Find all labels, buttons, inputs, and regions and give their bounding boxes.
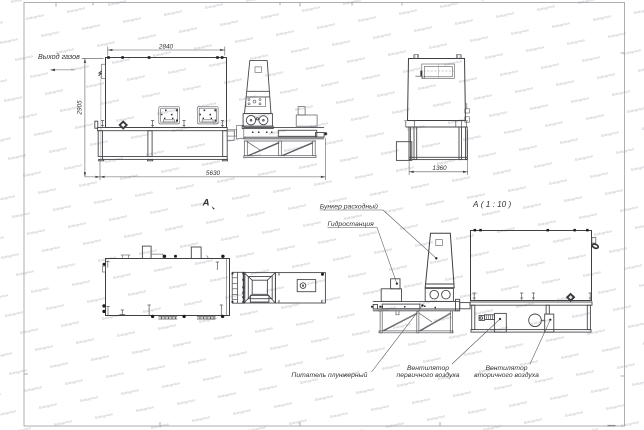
svg-text:Sodrug-Nv.k: Sodrug-Nv.k: [626, 106, 644, 114]
svg-text:Sodrug-Nv.k: Sodrug-Nv.k: [615, 147, 634, 155]
svg-text:Sodrug-Nv.k: Sodrug-Nv.k: [235, 251, 254, 259]
svg-text:Sodrug-Nv.k: Sodrug-Nv.k: [134, 190, 153, 198]
svg-text:Sodrug-Nv.k: Sodrug-Nv.k: [231, 193, 250, 201]
svg-text:Sodrug-Nv.k: Sodrug-Nv.k: [191, 415, 210, 423]
svg-text:Sodrug-Nv.k: Sodrug-Nv.k: [432, 100, 451, 108]
svg-text:Sodrug-Nv.k: Sodrug-Nv.k: [89, 139, 108, 147]
svg-text:Sodrug-Nv.k: Sodrug-Nv.k: [0, 351, 13, 359]
svg-text:Sodrug-Nv.k: Sodrug-Nv.k: [354, 172, 373, 180]
svg-text:Sodrug-Nv.k: Sodrug-Nv.k: [407, 339, 426, 347]
svg-text:Sodrug-Nv.k: Sodrug-Nv.k: [276, 244, 295, 252]
svg-text:Sodrug-Nv.k: Sodrug-Nv.k: [217, 391, 236, 399]
svg-text:Sodrug-Nv.k: Sodrug-Nv.k: [396, 380, 415, 388]
svg-text:Sodrug-Nv.k: Sodrug-Nv.k: [529, 103, 548, 111]
svg-text:Sodrug-Nv.k: Sodrug-Nv.k: [60, 320, 79, 328]
svg-text:Sodrug-Nv.k: Sodrug-Nv.k: [138, 248, 157, 256]
svg-text:Sodrug-Nv.k: Sodrug-Nv.k: [156, 108, 175, 116]
svg-text:Sodrug-Nv.k: Sodrug-Nv.k: [232, 408, 251, 416]
svg-text:Sodrug-Nv.k: Sodrug-Nv.k: [548, 178, 567, 186]
svg-text:Sodrug-Nv.k: Sodrug-Nv.k: [149, 207, 168, 215]
svg-text:Sodrug-Nv.k: Sodrug-Nv.k: [366, 346, 385, 354]
svg-text:Sodrug-Nv.k: Sodrug-Nv.k: [301, 5, 320, 13]
svg-text:Sodrug-Nv.k: Sodrug-Nv.k: [590, 386, 609, 394]
svg-text:первичного воздуха: первичного воздуха: [397, 371, 460, 379]
svg-text:Sodrug-Nv.k: Sodrug-Nv.k: [66, 6, 85, 14]
svg-text:Sodrug-Nv.k: Sodrug-Nv.k: [454, 18, 473, 26]
svg-text:Sodrug-Nv.k: Sodrug-Nv.k: [492, 168, 511, 176]
svg-text:А ( 1 : 10 ): А ( 1 : 10 ): [472, 200, 511, 209]
svg-text:Sodrug-Nv.k: Sodrug-Nv.k: [216, 176, 235, 184]
svg-text:Sodrug-Nv.k: Sodrug-Nv.k: [488, 110, 507, 118]
svg-text:Sodrug-Nv.k: Sodrug-Nv.k: [81, 23, 100, 31]
svg-text:Sodrug-Nv.k: Sodrug-Nv.k: [86, 296, 105, 304]
svg-text:Sodrug-Nv.k: Sodrug-Nv.k: [202, 374, 221, 382]
svg-text:Sodrug-Nv.k: Sodrug-Nv.k: [634, 222, 644, 230]
svg-text:Sodrug-Nv.k: Sodrug-Nv.k: [343, 213, 362, 221]
svg-text:Sodrug-Nv.k: Sodrug-Nv.k: [82, 238, 101, 246]
svg-text:Sodrug-Nv.k: Sodrug-Nv.k: [122, 16, 141, 24]
svg-text:Sodrug-Nv.k: Sodrug-Nv.k: [533, 161, 552, 169]
svg-text:Sodrug-Nv.k: Sodrug-Nv.k: [552, 236, 571, 244]
svg-text:Sodrug-Nv.k: Sodrug-Nv.k: [567, 253, 586, 261]
svg-text:Sodrug-Nv.k: Sodrug-Nv.k: [168, 282, 187, 290]
svg-text:Sodrug-Nv.k: Sodrug-Nv.k: [574, 154, 593, 162]
svg-text:Sodrug-Nv.k: Sodrug-Nv.k: [428, 42, 447, 50]
svg-text:Sodrug-Nv.k: Sodrug-Nv.k: [64, 378, 83, 386]
svg-text:Sodrug-Nv.k: Sodrug-Nv.k: [238, 94, 257, 102]
svg-text:Sodrug-Nv.k: Sodrug-Nv.k: [287, 203, 306, 211]
svg-text:Sodrug-Nv.k: Sodrug-Nv.k: [112, 272, 131, 280]
svg-text:Sodrug-Nv.k: Sodrug-Nv.k: [23, 385, 42, 393]
svg-text:Sodrug-Nv.k: Sodrug-Nv.k: [261, 227, 280, 235]
svg-text:Вентилятор: Вентилятор: [407, 365, 449, 372]
svg-text:Sodrug-Nv.k: Sodrug-Nv.k: [37, 187, 56, 195]
svg-text:Sodrug-Nv.k: Sodrug-Nv.k: [589, 171, 608, 179]
svg-text:Sodrug-Nv.k: Sodrug-Nv.k: [612, 304, 631, 312]
svg-text:Sodrug-Nv.k: Sodrug-Nv.k: [536, 4, 555, 12]
svg-text:Sodrug-Nv.k: Sodrug-Nv.k: [585, 113, 604, 121]
svg-text:Sodrug-Nv.k: Sodrug-Nv.k: [384, 206, 403, 214]
svg-text:Sodrug-Nv.k: Sodrug-Nv.k: [313, 179, 332, 187]
svg-text:Sodrug-Nv.k: Sodrug-Nv.k: [537, 219, 556, 227]
svg-text:Sodrug-Nv.k: Sodrug-Nv.k: [25, 13, 44, 21]
svg-text:Sodrug-Nv.k: Sodrug-Nv.k: [399, 223, 418, 231]
svg-text:Sodrug-Nv.k: Sodrug-Nv.k: [269, 343, 288, 351]
svg-text:Sodrug-Nv.k: Sodrug-Nv.k: [78, 180, 97, 188]
svg-text:Sodrug-Nv.k: Sodrug-Nv.k: [581, 55, 600, 63]
svg-text:Sodrug-Nv.k: Sodrug-Nv.k: [153, 265, 172, 273]
svg-text:Sodrug-Nv.k: Sodrug-Nv.k: [131, 347, 150, 355]
svg-text:Sodrug-Nv.k: Sodrug-Nv.k: [351, 329, 370, 337]
svg-text:Sodrug-Nv.k: Sodrug-Nv.k: [597, 287, 616, 295]
svg-text:Sodrug-Nv.k: Sodrug-Nv.k: [279, 87, 298, 95]
svg-text:Sodrug-Nv.k: Sodrug-Nv.k: [443, 59, 462, 67]
svg-text:Sodrug-Nv.k: Sodrug-Nv.k: [96, 40, 115, 48]
svg-text:Sodrug-Nv.k: Sodrug-Nv.k: [596, 72, 615, 80]
svg-text:Sodrug-Nv.k: Sodrug-Nv.k: [101, 313, 120, 321]
svg-text:Sodrug-Nv.k: Sodrug-Nv.k: [451, 175, 470, 183]
svg-text:Sodrug-Nv.k: Sodrug-Nv.k: [90, 354, 109, 362]
svg-text:Sodrug-Nv.k: Sodrug-Nv.k: [578, 212, 597, 220]
svg-text:Sodrug-Nv.k: Sodrug-Nv.k: [627, 321, 644, 329]
svg-text:Sodrug-Nv.k: Sodrug-Nv.k: [0, 392, 2, 400]
svg-text:Sodrug-Nv.k: Sodrug-Nv.k: [429, 257, 448, 265]
svg-text:Sodrug-Nv.k: Sodrug-Nv.k: [316, 22, 335, 30]
svg-text:Sodrug-Nv.k: Sodrug-Nv.k: [288, 418, 307, 426]
svg-text:Sodrug-Nv.k: Sodrug-Nv.k: [549, 393, 568, 401]
svg-text:Sodrug-Nv.k: Sodrug-Nv.k: [70, 64, 89, 72]
svg-text:Sodrug-Nv.k: Sodrug-Nv.k: [291, 261, 310, 269]
svg-text:Sodrug-Nv.k: Sodrug-Nv.k: [540, 62, 559, 70]
svg-text:Sodrug-Nv.k: Sodrug-Nv.k: [619, 205, 638, 213]
svg-text:Sodrug-Nv.k: Sodrug-Nv.k: [638, 280, 644, 288]
svg-text:А: А: [202, 198, 210, 209]
svg-text:Sodrug-Nv.k: Sodrug-Nv.k: [11, 211, 30, 219]
svg-text:Sodrug-Nv.k: Sodrug-Nv.k: [467, 407, 486, 415]
svg-text:Sodrug-Nv.k: Sodrug-Nv.k: [0, 177, 1, 185]
svg-text:Sodrug-Nv.k: Sodrug-Nv.k: [85, 81, 104, 89]
svg-text:Sodrug-Nv.k: Sodrug-Nv.k: [52, 204, 71, 212]
svg-text:Sodrug-Nv.k: Sodrug-Nv.k: [320, 80, 339, 88]
svg-text:Sodrug-Nv.k: Sodrug-Nv.k: [242, 152, 261, 160]
svg-text:Sodrug-Nv.k: Sodrug-Nv.k: [294, 104, 313, 112]
svg-text:Sodrug-Nv.k: Sodrug-Nv.k: [18, 112, 37, 120]
svg-text:Sodrug-Nv.k: Sodrug-Nv.k: [75, 337, 94, 345]
svg-text:Sodrug-Nv.k: Sodrug-Nv.k: [495, 11, 514, 19]
svg-text:Sodrug-Nv.k: Sodrug-Nv.k: [440, 216, 459, 224]
svg-text:Sodrug-Nv.k: Sodrug-Nv.k: [298, 162, 317, 170]
svg-text:Sodrug-Nv.k: Sodrug-Nv.k: [74, 122, 93, 130]
svg-text:Sodrug-Nv.k: Sodrug-Nv.k: [94, 412, 113, 420]
svg-text:Sodrug-Nv.k: Sodrug-Nv.k: [370, 404, 389, 412]
svg-text:Sodrug-Nv.k: Sodrug-Nv.k: [290, 46, 309, 54]
svg-text:Sodrug-Nv.k: Sodrug-Nv.k: [620, 420, 639, 428]
svg-text:Sodrug-Nv.k: Sodrug-Nv.k: [355, 387, 374, 395]
svg-text:Sodrug-Nv.k: Sodrug-Nv.k: [525, 45, 544, 53]
svg-text:Выход газов: Выход газов: [38, 52, 80, 61]
svg-text:Sodrug-Nv.k: Sodrug-Nv.k: [0, 293, 9, 301]
svg-text:Sodrug-Nv.k: Sodrug-Nv.k: [135, 405, 154, 413]
svg-text:Sodrug-Nv.k: Sodrug-Nv.k: [381, 363, 400, 371]
svg-text:Sodrug-Nv.k: Sodrug-Nv.k: [104, 156, 123, 164]
svg-text:Sodrug-Nv.k: Sodrug-Nv.k: [176, 398, 195, 406]
svg-text:Sodrug-Nv.k: Sodrug-Nv.k: [163, 9, 182, 17]
svg-text:Sodrug-Nv.k: Sodrug-Nv.k: [365, 131, 384, 139]
svg-text:Вентилятор: Вентилятор: [485, 365, 527, 372]
svg-text:Sodrug-Nv.k: Sodrug-Nv.k: [331, 39, 350, 47]
svg-text:Sodrug-Nv.k: Sodrug-Nv.k: [243, 367, 262, 375]
svg-text:Sodrug-Nv.k: Sodrug-Nv.k: [116, 330, 135, 338]
svg-text:Sodrug-Nv.k: Sodrug-Nv.k: [592, 14, 611, 22]
svg-text:Sodrug-Nv.k: Sodrug-Nv.k: [26, 228, 45, 236]
svg-text:Sodrug-Nv.k: Sodrug-Nv.k: [152, 50, 171, 58]
svg-text:Sodrug-Nv.k: Sodrug-Nv.k: [398, 8, 417, 16]
svg-text:Sodrug-Nv.k: Sodrug-Nv.k: [526, 260, 545, 268]
svg-text:Sodrug-Nv.k: Sodrug-Nv.k: [523, 417, 542, 425]
svg-text:Sodrug-Nv.k: Sodrug-Nv.k: [413, 25, 432, 33]
svg-text:Sodrug-Nv.k: Sodrug-Nv.k: [126, 74, 145, 82]
svg-text:Sodrug-Nv.k: Sodrug-Nv.k: [198, 316, 217, 324]
svg-text:Sodrug-Nv.k: Sodrug-Nv.k: [346, 56, 365, 64]
svg-text:Sodrug-Nv.k: Sodrug-Nv.k: [564, 410, 583, 418]
svg-text:Sodrug-Nv.k: Sodrug-Nv.k: [175, 183, 194, 191]
svg-text:2905: 2905: [77, 100, 84, 116]
svg-text:Sodrug-Nv.k: Sodrug-Nv.k: [115, 115, 134, 123]
svg-text:Sodrug-Nv.k: Sodrug-Nv.k: [376, 90, 395, 98]
svg-text:Sodrug-Nv.k: Sodrug-Nv.k: [250, 268, 269, 276]
svg-text:вторичного воздуха: вторичного воздуха: [474, 371, 539, 379]
svg-text:Sodrug-Nv.k: Sodrug-Nv.k: [314, 394, 333, 402]
svg-text:Sodrug-Nv.k: Sodrug-Nv.k: [295, 319, 314, 327]
svg-text:Sodrug-Nv.k: Sodrug-Nv.k: [249, 53, 268, 61]
svg-text:Sodrug-Nv.k: Sodrug-Nv.k: [310, 336, 329, 344]
svg-text:Sodrug-Nv.k: Sodrug-Nv.k: [373, 247, 392, 255]
svg-text:Sodrug-Nv.k: Sodrug-Nv.k: [157, 323, 176, 331]
svg-text:Sodrug-Nv.k: Sodrug-Nv.k: [604, 188, 623, 196]
svg-text:Sodrug-Nv.k: Sodrug-Nv.k: [254, 326, 273, 334]
svg-text:Sodrug-Nv.k: Sodrug-Nv.k: [178, 26, 197, 34]
svg-text:Sodrug-Nv.k: Sodrug-Nv.k: [508, 400, 527, 408]
svg-text:Sodrug-Nv.k: Sodrug-Nv.k: [71, 279, 90, 287]
svg-text:Sodrug-Nv.k: Sodrug-Nv.k: [34, 344, 53, 352]
svg-text:Sodrug-Nv.k: Sodrug-Nv.k: [204, 2, 223, 10]
svg-text:Sodrug-Nv.k: Sodrug-Nv.k: [3, 95, 22, 103]
svg-text:Sodrug-Nv.k: Sodrug-Nv.k: [362, 288, 381, 296]
svg-text:Sodrug-Nv.k: Sodrug-Nv.k: [228, 350, 247, 358]
svg-text:Sodrug-Nv.k: Sodrug-Nv.k: [30, 286, 49, 294]
svg-text:Sodrug-Nv.k: Sodrug-Nv.k: [623, 263, 642, 271]
svg-text:Sodrug-Nv.k: Sodrug-Nv.k: [172, 340, 191, 348]
svg-text:Sodrug-Nv.k: Sodrug-Nv.k: [630, 164, 644, 172]
svg-text:Sodrug-Nv.k: Sodrug-Nv.k: [485, 267, 504, 275]
svg-text:Sodrug-Nv.k: Sodrug-Nv.k: [480, 0, 499, 2]
svg-text:Sodrug-Nv.k: Sodrug-Nv.k: [503, 127, 522, 135]
svg-text:Sodrug-Nv.k: Sodrug-Nv.k: [510, 28, 529, 36]
svg-text:Sodrug-Nv.k: Sodrug-Nv.k: [179, 241, 198, 249]
svg-text:Sodrug-Nv.k: Sodrug-Nv.k: [518, 144, 537, 152]
svg-text:Sodrug-Nv.k: Sodrug-Nv.k: [637, 65, 644, 73]
svg-text:Sodrug-Nv.k: Sodrug-Nv.k: [563, 195, 582, 203]
svg-text:Sodrug-Nv.k: Sodrug-Nv.k: [4, 310, 23, 318]
svg-text:Sodrug-Nv.k: Sodrug-Nv.k: [107, 0, 126, 7]
svg-text:Sodrug-Nv.k: Sodrug-Nv.k: [0, 78, 8, 86]
svg-text:Sodrug-Nv.k: Sodrug-Nv.k: [452, 390, 471, 398]
svg-text:Sodrug-Nv.k: Sodrug-Nv.k: [0, 20, 4, 28]
svg-text:Sodrug-Nv.k: Sodrug-Nv.k: [0, 136, 12, 144]
svg-text:Sodrug-Nv.k: Sodrug-Nv.k: [593, 229, 612, 237]
svg-text:Sodrug-Nv.k: Sodrug-Nv.k: [616, 362, 635, 370]
svg-text:Sodrug-Nv.k: Sodrug-Nv.k: [411, 397, 430, 405]
svg-text:Sodrug-Nv.k: Sodrug-Nv.k: [458, 76, 477, 84]
svg-text:Sodrug-Nv.k: Sodrug-Nv.k: [142, 306, 161, 314]
svg-text:Sodrug-Nv.k: Sodrug-Nv.k: [470, 250, 489, 258]
svg-text:Sodrug-Nv.k: Sodrug-Nv.k: [209, 275, 228, 283]
svg-text:Sodrug-Nv.k: Sodrug-Nv.k: [49, 361, 68, 369]
svg-text:Sodrug-Nv.k: Sodrug-Nv.k: [425, 199, 444, 207]
svg-text:Sodrug-Nv.k: Sodrug-Nv.k: [570, 96, 589, 104]
svg-text:Sodrug-Nv.k: Sodrug-Nv.k: [358, 230, 377, 238]
svg-text:Sodrug-Nv.k: Sodrug-Nv.k: [545, 335, 564, 343]
svg-text:Sodrug-Nv.k: Sodrug-Nv.k: [273, 401, 292, 409]
svg-text:Sodrug-Nv.k: Sodrug-Nv.k: [205, 217, 224, 225]
svg-text:Sodrug-Nv.k: Sodrug-Nv.k: [305, 63, 324, 71]
svg-text:Sodrug-Nv.k: Sodrug-Nv.k: [239, 309, 258, 317]
svg-text:Sodrug-Nv.k: Sodrug-Nv.k: [93, 197, 112, 205]
svg-text:Sodrug-Nv.k: Sodrug-Nv.k: [484, 52, 503, 60]
svg-text:Sodrug-Nv.k: Sodrug-Nv.k: [208, 60, 227, 68]
svg-text:Sodrug-Nv.k: Sodrug-Nv.k: [466, 192, 485, 200]
svg-text:Sodrug-Nv.k: Sodrug-Nv.k: [499, 69, 518, 77]
svg-text:Sodrug-Nv.k: Sodrug-Nv.k: [284, 360, 303, 368]
svg-text:Sodrug-Nv.k: Sodrug-Nv.k: [63, 163, 82, 171]
svg-text:Sodrug-Nv.k: Sodrug-Nv.k: [160, 166, 179, 174]
svg-text:Sodrug-Nv.k: Sodrug-Nv.k: [108, 214, 127, 222]
svg-text:Sodrug-Nv.k: Sodrug-Nv.k: [56, 262, 75, 270]
svg-text:2840: 2840: [158, 43, 174, 50]
svg-text:Sodrug-Nv.k: Sodrug-Nv.k: [197, 101, 216, 109]
svg-text:Sodrug-Nv.k: Sodrug-Nv.k: [219, 19, 238, 27]
svg-text:Sodrug-Nv.k: Sodrug-Nv.k: [571, 311, 590, 319]
svg-text:Sodrug-Nv.k: Sodrug-Nv.k: [127, 289, 146, 297]
svg-text:Sodrug-Nv.k: Sodrug-Nv.k: [67, 221, 86, 229]
svg-text:Sodrug-Nv.k: Sodrug-Nv.k: [321, 295, 340, 303]
svg-text:Sodrug-Nv.k: Sodrug-Nv.k: [361, 73, 380, 81]
svg-text:Sodrug-Nv.k: Sodrug-Nv.k: [575, 369, 594, 377]
svg-text:Sodrug-Nv.k: Sodrug-Nv.k: [560, 352, 579, 360]
svg-text:Sodrug-Nv.k: Sodrug-Nv.k: [8, 368, 27, 376]
svg-text:Sodrug-Nv.k: Sodrug-Nv.k: [146, 364, 165, 372]
svg-text:Sodrug-Nv.k: Sodrug-Nv.k: [141, 91, 160, 99]
svg-text:Sodrug-Nv.k: Sodrug-Nv.k: [246, 210, 265, 218]
svg-text:Sodrug-Nv.k: Sodrug-Nv.k: [22, 170, 41, 178]
svg-text:Sodrug-Nv.k: Sodrug-Nv.k: [551, 21, 570, 29]
svg-text:Sodrug-Nv.k: Sodrug-Nv.k: [111, 57, 130, 65]
svg-text:Sodrug-Nv.k: Sodrug-Nv.k: [0, 252, 19, 260]
svg-text:Sodrug-Nv.k: Sodrug-Nv.k: [421, 141, 440, 149]
svg-text:Sodrug-Nv.k: Sodrug-Nv.k: [369, 189, 388, 197]
svg-text:Sodrug-Nv.k: Sodrug-Nv.k: [357, 15, 376, 23]
svg-text:Бункер расходный: Бункер расходный: [320, 203, 378, 211]
svg-text:Sodrug-Nv.k: Sodrug-Nv.k: [258, 384, 277, 392]
svg-text:Sodrug-Nv.k: Sodrug-Nv.k: [448, 332, 467, 340]
svg-text:Sodrug-Nv.k: Sodrug-Nv.k: [493, 383, 512, 391]
svg-text:Sodrug-Nv.k: Sodrug-Nv.k: [417, 83, 436, 91]
svg-text:Sodrug-Nv.k: Sodrug-Nv.k: [220, 234, 239, 242]
svg-text:Sodrug-Nv.k: Sodrug-Nv.k: [257, 169, 276, 177]
svg-text:Sodrug-Nv.k: Sodrug-Nv.k: [164, 224, 183, 232]
svg-text:Sodrug-Nv.k: Sodrug-Nv.k: [459, 291, 478, 299]
svg-text:Sodrug-Nv.k: Sodrug-Nv.k: [544, 120, 563, 128]
svg-text:Sodrug-Nv.k: Sodrug-Nv.k: [530, 318, 549, 326]
svg-text:Sodrug-Nv.k: Sodrug-Nv.k: [10, 0, 29, 4]
svg-text:Sodrug-Nv.k: Sodrug-Nv.k: [167, 67, 186, 75]
svg-text:Sodrug-Nv.k: Sodrug-Nv.k: [29, 71, 48, 79]
svg-text:Sodrug-Nv.k: Sodrug-Nv.k: [605, 403, 624, 411]
svg-text:Sodrug-Nv.k: Sodrug-Nv.k: [0, 235, 5, 243]
svg-text:Sodrug-Nv.k: Sodrug-Nv.k: [137, 33, 156, 41]
svg-text:Sodrug-Nv.k: Sodrug-Nv.k: [0, 194, 16, 202]
svg-text:Sodrug-Nv.k: Sodrug-Nv.k: [130, 132, 149, 140]
svg-text:Sodrug-Nv.k: Sodrug-Nv.k: [38, 402, 57, 410]
svg-text:Sodrug-Nv.k: Sodrug-Nv.k: [105, 371, 124, 379]
svg-text:Sodrug-Nv.k: Sodrug-Nv.k: [522, 202, 541, 210]
svg-text:Sodrug-Nv.k: Sodrug-Nv.k: [422, 356, 441, 364]
svg-text:Sodrug-Nv.k: Sodrug-Nv.k: [194, 258, 213, 266]
svg-text:Sodrug-Nv.k: Sodrug-Nv.k: [79, 395, 98, 403]
svg-text:5630: 5630: [206, 170, 221, 177]
svg-text:Sodrug-Nv.k: Sodrug-Nv.k: [41, 245, 60, 253]
svg-text:Sodrug-Nv.k: Sodrug-Nv.k: [541, 277, 560, 285]
svg-text:Sodrug-Nv.k: Sodrug-Nv.k: [19, 327, 38, 335]
svg-text:Sodrug-Nv.k: Sodrug-Nv.k: [302, 220, 321, 228]
svg-text:Sodrug-Nv.k: Sodrug-Nv.k: [44, 88, 63, 96]
svg-text:Sodrug-Nv.k: Sodrug-Nv.k: [582, 270, 601, 278]
svg-text:Sodrug-Nv.k: Sodrug-Nv.k: [123, 231, 142, 239]
svg-text:Sodrug-Nv.k: Sodrug-Nv.k: [317, 237, 336, 245]
svg-text:Sodrug-Nv.k: Sodrug-Nv.k: [325, 353, 344, 361]
svg-text:Sodrug-Nv.k: Sodrug-Nv.k: [224, 292, 243, 300]
svg-text:Sodrug-Nv.k: Sodrug-Nv.k: [482, 424, 501, 430]
svg-text:Sodrug-Nv.k: Sodrug-Nv.k: [339, 155, 358, 163]
svg-text:Гидростанция: Гидростанция: [328, 220, 375, 228]
svg-text:Sodrug-Nv.k: Sodrug-Nv.k: [275, 29, 294, 37]
svg-text:Sodrug-Nv.k: Sodrug-Nv.k: [350, 114, 369, 122]
svg-text:Sodrug-Nv.k: Sodrug-Nv.k: [264, 70, 283, 78]
svg-text:Sodrug-Nv.k: Sodrug-Nv.k: [187, 357, 206, 365]
svg-text:Sodrug-Nv.k: Sodrug-Nv.k: [201, 159, 220, 167]
svg-text:Sodrug-Nv.k: Sodrug-Nv.k: [332, 254, 351, 262]
svg-text:Sodrug-Nv.k: Sodrug-Nv.k: [48, 146, 67, 154]
svg-text:Sodrug-Nv.k: Sodrug-Nv.k: [40, 30, 59, 38]
svg-text:Питатель плунжерный: Питатель плунжерный: [291, 371, 367, 379]
svg-text:Sodrug-Nv.k: Sodrug-Nv.k: [234, 36, 253, 44]
svg-text:Sodrug-Nv.k: Sodrug-Nv.k: [469, 35, 488, 43]
svg-text:Sodrug-Nv.k: Sodrug-Nv.k: [324, 138, 343, 146]
svg-text:Sodrug-Nv.k: Sodrug-Nv.k: [171, 125, 190, 133]
svg-text:Sodrug-Nv.k: Sodrug-Nv.k: [511, 243, 530, 251]
svg-text:Sodrug-Nv.k: Sodrug-Nv.k: [514, 86, 533, 94]
svg-text:Sodrug-Nv.k: Sodrug-Nv.k: [33, 129, 52, 137]
svg-text:Sodrug-Nv.k: Sodrug-Nv.k: [555, 79, 574, 87]
svg-text:Sodrug-Nv.k: Sodrug-Nv.k: [607, 31, 626, 39]
svg-text:Sodrug-Nv.k: Sodrug-Nv.k: [100, 98, 119, 106]
svg-text:Sodrug-Nv.k: Sodrug-Nv.k: [402, 66, 421, 74]
svg-text:Sodrug-Nv.k: Sodrug-Nv.k: [15, 269, 34, 277]
svg-text:Sodrug-Nv.k: Sodrug-Nv.k: [186, 142, 205, 150]
svg-text:Sodrug-Nv.k: Sodrug-Nv.k: [161, 381, 180, 389]
svg-text:Sodrug-Nv.k: Sodrug-Nv.k: [507, 185, 526, 193]
svg-text:1360: 1360: [432, 165, 447, 172]
svg-text:Sodrug-Nv.k: Sodrug-Nv.k: [329, 411, 348, 419]
svg-text:Sodrug-Nv.k: Sodrug-Nv.k: [410, 182, 429, 190]
svg-text:Sodrug-Nv.k: Sodrug-Nv.k: [183, 299, 202, 307]
svg-text:Sodrug-Nv.k: Sodrug-Nv.k: [272, 186, 291, 194]
svg-text:Sodrug-Nv.k: Sodrug-Nv.k: [335, 97, 354, 105]
svg-text:Sodrug-Nv.k: Sodrug-Nv.k: [120, 388, 139, 396]
svg-text:Sodrug-Nv.k: Sodrug-Nv.k: [418, 298, 437, 306]
svg-text:Sodrug-Nv.k: Sodrug-Nv.k: [473, 93, 492, 101]
svg-text:Sodrug-Nv.k: Sodrug-Nv.k: [477, 151, 496, 159]
svg-text:Sodrug-Nv.k: Sodrug-Nv.k: [559, 137, 578, 145]
svg-text:Sodrug-Nv.k: Sodrug-Nv.k: [45, 303, 64, 311]
svg-text:Sodrug-Nv.k: Sodrug-Nv.k: [481, 209, 500, 217]
svg-text:Sodrug-Nv.k: Sodrug-Nv.k: [500, 284, 519, 292]
svg-text:Sodrug-Nv.k: Sodrug-Nv.k: [566, 38, 585, 46]
svg-text:Sodrug-Nv.k: Sodrug-Nv.k: [455, 233, 474, 241]
svg-text:Sodrug-Nv.k: Sodrug-Nv.k: [601, 345, 620, 353]
svg-text:Sodrug-Nv.k: Sodrug-Nv.k: [403, 281, 422, 289]
svg-text:Sodrug-Nv.k: Sodrug-Nv.k: [504, 342, 523, 350]
